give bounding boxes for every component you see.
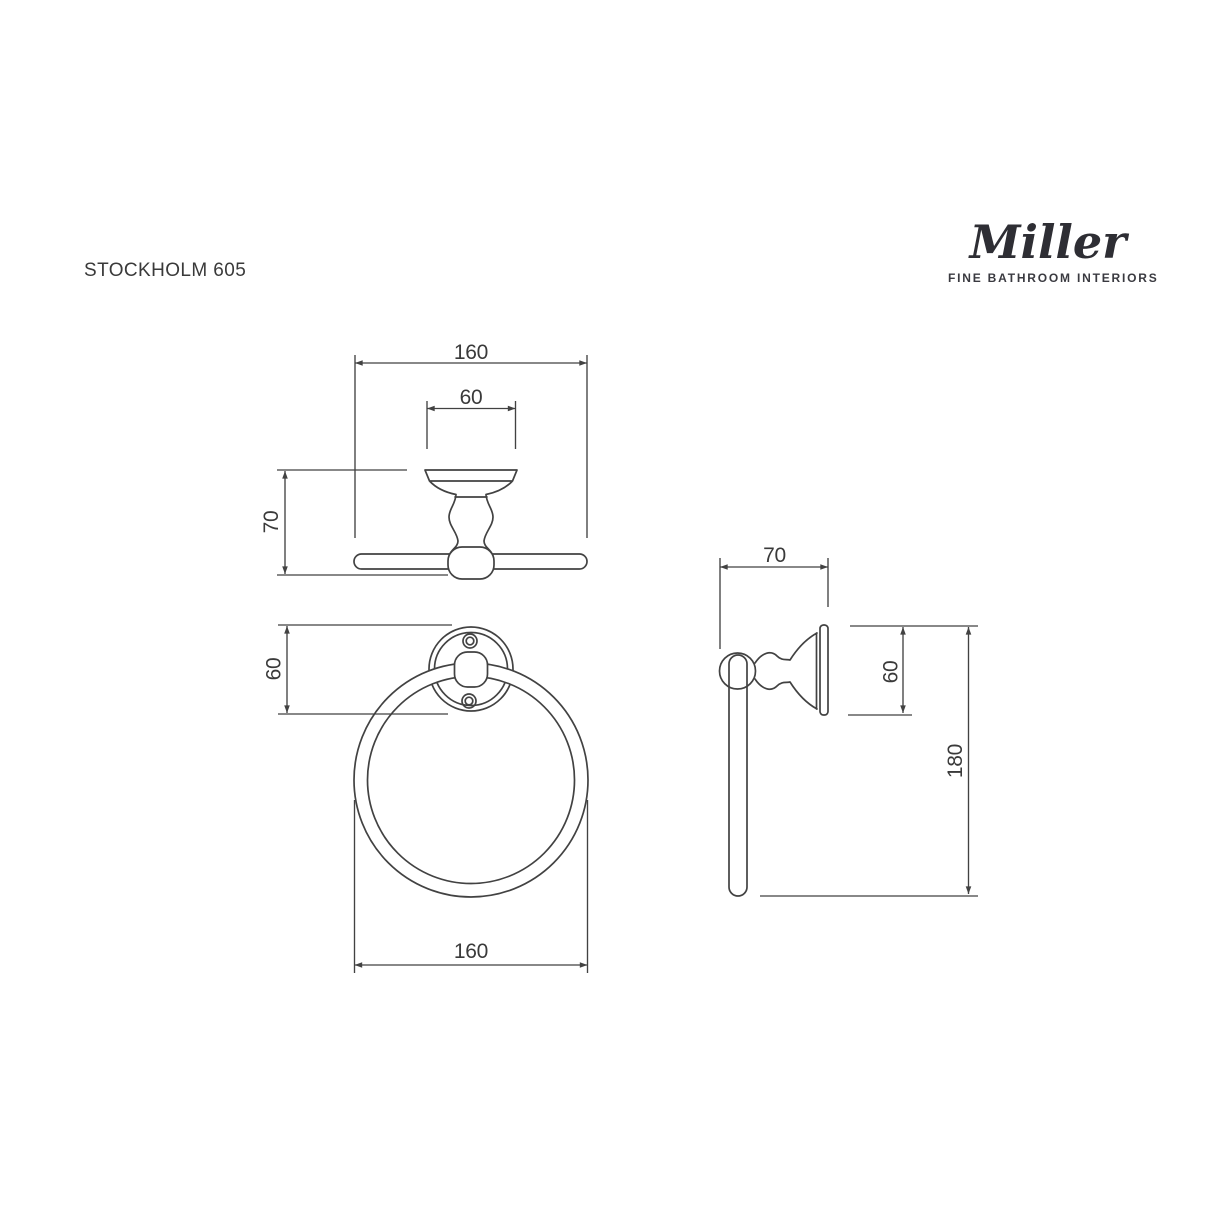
top-view: 160 60 70 bbox=[260, 341, 587, 579]
dim-label-side-rose-height: 60 bbox=[880, 661, 903, 684]
side-view: 70 60 180 bbox=[720, 544, 979, 896]
plan-connector-block bbox=[448, 547, 494, 579]
top-view-part bbox=[354, 470, 587, 579]
front-view: 60 160 bbox=[263, 625, 589, 973]
drawing-sheet: STOCKHOLM 605 Miller FINE BATHROOM INTER… bbox=[0, 0, 1214, 1214]
side-connector-boss bbox=[720, 653, 756, 689]
side-ring-bar bbox=[729, 655, 747, 896]
side-view-dimensions: 70 60 180 bbox=[720, 544, 978, 896]
dim-label-top-backplate-width: 60 bbox=[460, 386, 483, 409]
dim-label-top-overall-width: 160 bbox=[454, 341, 488, 364]
dim-label-front-ring-width: 160 bbox=[454, 940, 488, 963]
dim-label-top-projection: 70 bbox=[260, 511, 283, 534]
side-view-part bbox=[720, 625, 829, 896]
top-view-dimensions: 160 60 70 bbox=[260, 341, 587, 575]
dim-label-side-projection: 70 bbox=[763, 544, 786, 567]
side-wall-plate bbox=[820, 625, 828, 715]
plan-rose-and-stem bbox=[425, 470, 517, 554]
dim-label-side-overall-height: 180 bbox=[944, 744, 967, 778]
dim-label-front-rose-height: 60 bbox=[263, 658, 286, 681]
technical-drawing: 160 60 70 bbox=[0, 0, 1214, 1214]
front-view-part bbox=[354, 627, 588, 897]
side-stem-profile bbox=[755, 633, 817, 709]
front-connector-block bbox=[455, 652, 488, 687]
